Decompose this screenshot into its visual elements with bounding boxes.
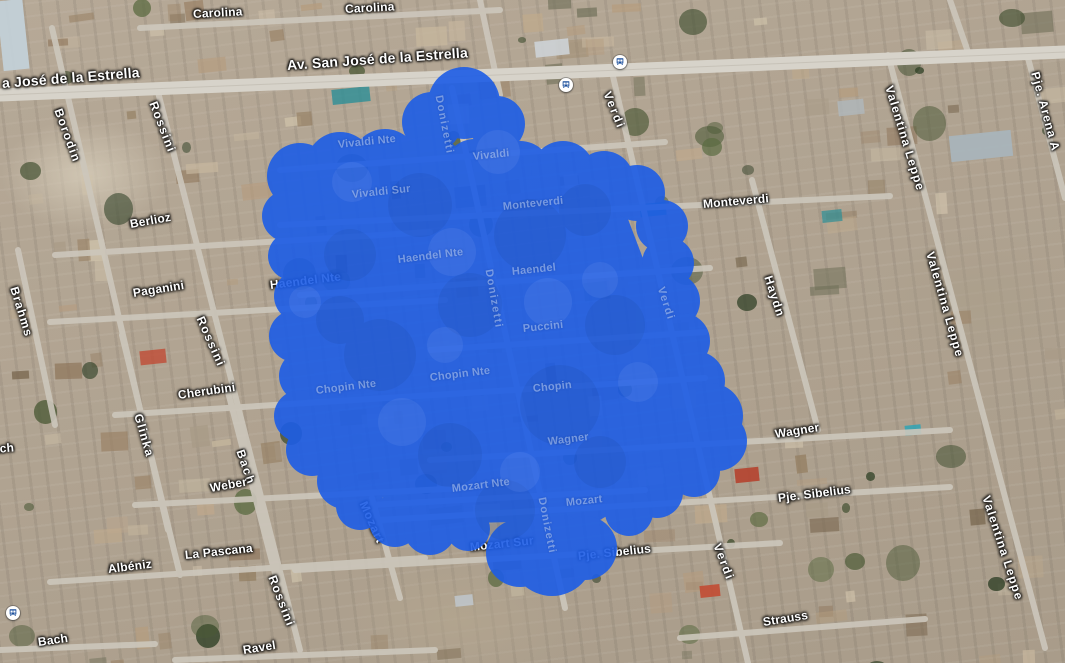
map-texture — [331, 86, 370, 105]
map-texture — [107, 516, 129, 533]
map-texture — [90, 352, 103, 367]
transit-stop-icon[interactable] — [6, 606, 20, 620]
map-texture — [473, 503, 501, 515]
map-texture — [591, 379, 624, 402]
street-label-monteverdi: Monteverdi — [702, 192, 769, 210]
map-texture — [589, 180, 609, 199]
map-texture — [414, 264, 425, 278]
map-texture — [682, 650, 692, 659]
faint-street-label-mozart: Mozart — [565, 494, 603, 509]
map-texture — [430, 505, 465, 525]
map-texture-tree — [702, 138, 721, 156]
map-texture — [825, 210, 856, 220]
transit-vehicle-glyph — [561, 80, 571, 90]
map-texture — [795, 455, 808, 474]
map-texture — [184, 0, 206, 21]
street-label-mozart-sur: Mozart Sur — [469, 534, 534, 553]
map-texture — [77, 239, 91, 262]
map-texture — [284, 368, 315, 378]
map-texture — [301, 3, 322, 12]
map-texture — [379, 166, 392, 187]
map-texture — [861, 130, 881, 143]
faint-street-label-donizetti: Donizetti — [483, 269, 504, 330]
map-texture — [785, 440, 804, 448]
map-texture-tree — [34, 400, 57, 423]
map-texture-tree — [323, 269, 351, 293]
faint-street-label-vivaldi: Vivaldi — [472, 148, 510, 163]
map-texture — [362, 413, 389, 428]
map-texture — [352, 433, 363, 444]
map-texture-tree — [82, 362, 98, 379]
map-texture — [45, 433, 62, 445]
map-texture — [719, 443, 731, 463]
map-texture — [211, 438, 231, 447]
map-texture — [1020, 11, 1053, 35]
map-texture — [1037, 86, 1065, 104]
map-texture — [670, 322, 690, 333]
map-texture — [905, 424, 922, 436]
map-texture — [258, 9, 276, 25]
map-texture — [229, 548, 260, 560]
map-texture-tree — [191, 615, 219, 638]
street-label-strauss: Strauss — [762, 609, 809, 628]
map-texture — [821, 209, 842, 223]
map-texture — [805, 98, 830, 116]
street-label-pje-sibelius: Pje. Sibelius — [577, 542, 651, 562]
map-texture-tree — [58, 71, 74, 84]
street-label-ravel: Ravel — [242, 639, 277, 656]
map-texture — [686, 581, 703, 590]
street-label-pje-sibelius: Pje. Sibelius — [777, 483, 851, 504]
map-texture — [139, 349, 166, 366]
street-label-berlioz: Berlioz — [129, 211, 172, 230]
map-texture — [683, 570, 705, 592]
map-texture — [68, 13, 94, 23]
map-texture-tree — [446, 131, 461, 148]
map-texture-tree — [518, 37, 526, 43]
map-texture — [382, 394, 414, 406]
map-texture-tree — [707, 122, 723, 134]
map-texture — [947, 105, 958, 114]
map-texture — [998, 582, 1021, 595]
map-texture — [290, 564, 302, 583]
map-texture-tree — [563, 450, 577, 465]
map-texture — [548, 0, 572, 9]
map-texture — [176, 169, 200, 184]
street-label-cherubini: Cherubini — [177, 381, 236, 401]
faint-street-label-puccini: Puccini — [522, 320, 563, 335]
map-texture-tree — [842, 503, 850, 512]
map-texture — [487, 343, 502, 353]
street-label-haydn: Haydn — [762, 274, 787, 318]
map-texture — [754, 17, 768, 25]
map-texture — [468, 148, 499, 160]
faint-street-label-verdi: Verdi — [655, 286, 676, 322]
street-label-paganini: Paganini — [132, 279, 185, 299]
map-texture — [585, 38, 604, 55]
map-texture — [582, 36, 614, 47]
map-texture — [48, 39, 68, 47]
street-label-rossini: Rossini — [195, 315, 228, 369]
map-texture — [423, 340, 450, 358]
map-texture-tree — [133, 0, 151, 17]
blue-scribble-overlay — [0, 0, 1065, 663]
map-texture — [567, 25, 586, 36]
street-label-verdi: Verdi — [711, 542, 736, 582]
map-texture-tree — [182, 142, 191, 153]
map-texture-tree — [695, 126, 724, 147]
map-texture — [637, 467, 665, 486]
map-texture-tree — [845, 553, 865, 570]
map-texture — [12, 371, 29, 380]
street-label-carolina: Carolina — [193, 5, 243, 20]
map-texture — [606, 279, 628, 290]
map-texture — [415, 26, 447, 46]
map-texture — [579, 429, 602, 450]
map-texture — [555, 39, 589, 60]
blob-light-texture — [289, 130, 658, 492]
map-texture — [197, 56, 226, 72]
map-texture — [390, 180, 402, 199]
map-texture-tree — [655, 196, 669, 211]
map-texture — [94, 259, 109, 280]
map-texture — [94, 528, 123, 544]
map-texture — [234, 132, 260, 142]
street-label-valentina-leppe: Valentina Leppe — [883, 84, 926, 192]
map-texture — [478, 77, 511, 99]
street-label-glinka: Glinka — [132, 412, 156, 458]
faint-street-label-mozart-nte: Mozart Nte — [451, 477, 510, 495]
street-label-wagner: Wagner — [774, 421, 820, 440]
map-texture — [58, 36, 81, 48]
map-texture — [619, 393, 633, 401]
map-texture-tree — [24, 503, 34, 511]
map-texture — [937, 40, 964, 52]
street-label-rossini: Rossini — [266, 574, 296, 629]
map-texture — [296, 111, 312, 127]
street-label-mozart: Mozart — [358, 500, 387, 546]
map-texture — [845, 591, 856, 603]
map-texture-tree — [737, 294, 758, 312]
map-texture — [815, 609, 847, 624]
map-texture — [448, 104, 470, 125]
map-texture — [239, 565, 257, 580]
map-texture — [394, 411, 404, 425]
map-texture-tree — [866, 472, 876, 481]
map-texture — [644, 530, 675, 544]
street-label-carolina: Carolina — [345, 0, 395, 15]
map-texture-tree — [196, 624, 220, 648]
map-texture — [9, 307, 34, 319]
map-texture — [513, 415, 538, 423]
street-label-bach: Bach — [0, 441, 15, 456]
map-texture — [556, 569, 574, 580]
map-texture — [926, 30, 953, 50]
map-texture-tree — [671, 257, 703, 285]
street-labels-layer: CarolinaCarolinaa José de la EstrellaVer… — [0, 0, 1065, 663]
map-texture — [472, 395, 489, 412]
faint-street-label-vivaldi-sur: Vivaldi Sur — [351, 184, 411, 201]
map-texture — [386, 81, 397, 91]
map-texture — [196, 498, 214, 515]
street-label-valentina-leppe: Valentina Leppe — [980, 494, 1025, 602]
transit-vehicle-glyph — [615, 57, 625, 67]
faint-street-label-chopin-nte: Chopin Nte — [429, 366, 491, 384]
map-texture — [134, 476, 151, 490]
map-texture — [633, 76, 645, 96]
overlay-labels-layer: Av. San José de la EstrellaDonizettiViva… — [0, 0, 1065, 663]
map-texture-tree — [104, 193, 133, 225]
faint-street-label-chopin-nte: Chopin Nte — [315, 379, 377, 397]
faint-street-label-monteverdi: Monteverdi — [502, 196, 564, 213]
map-texture — [273, 343, 283, 360]
map-texture — [735, 256, 747, 268]
map-texture — [1045, 347, 1065, 359]
map-texture-tree — [469, 212, 493, 237]
map-texture-tree — [415, 474, 437, 494]
map-texture-tree — [886, 545, 920, 582]
map-texture — [619, 344, 651, 364]
map-texture — [315, 215, 327, 233]
transit-stop-icon[interactable] — [613, 55, 627, 69]
street-label-rossini: Rossini — [147, 100, 177, 155]
faint-street-label-donizetti: Donizetti — [433, 94, 455, 155]
map-texture — [792, 57, 810, 79]
map-texture — [399, 458, 419, 476]
street-label-alb-niz: Albéniz — [107, 558, 152, 575]
map-texture — [699, 584, 720, 598]
map-texture — [128, 524, 149, 535]
map-texture — [560, 175, 580, 186]
map-texture — [89, 657, 108, 663]
map-texture-tree — [305, 296, 317, 310]
map-texture-tree — [336, 154, 368, 182]
map-texture — [81, 175, 93, 196]
map-texture — [510, 585, 524, 598]
map-texture — [190, 425, 210, 449]
map-texture — [979, 654, 1002, 663]
map-texture — [819, 606, 833, 617]
map-texture — [260, 440, 282, 463]
map-texture — [506, 179, 522, 194]
map-texture — [437, 648, 462, 660]
faint-street-label-wagner: Wagner — [547, 432, 589, 448]
map-texture-tree — [280, 422, 302, 445]
map-texture — [53, 241, 66, 257]
map-texture-tree — [913, 106, 946, 141]
map-texture — [323, 273, 340, 281]
map-texture — [838, 87, 858, 98]
street-label-haendel-nte: Haendel Nte — [269, 270, 341, 291]
map-texture-tree — [441, 442, 452, 452]
street-label-av-san-jos-de-la-estrella: Av. San José de la Estrella — [287, 45, 469, 72]
map-texture — [226, 279, 237, 286]
faint-street-label-haendel-nte: Haendel Nte — [397, 247, 464, 266]
map-texture — [351, 159, 368, 167]
blob-shape — [262, 67, 747, 596]
map-texture — [810, 517, 840, 533]
map-texture-tree — [1042, 126, 1051, 135]
map-texture — [285, 116, 301, 126]
map-texture — [28, 193, 44, 205]
transit-vehicle-glyph — [8, 608, 18, 618]
map-texture — [358, 473, 380, 482]
street-label-valentina-leppe: Valentina Leppe — [924, 250, 966, 358]
map-texture — [339, 409, 367, 426]
satellite-map-canvas[interactable]: CarolinaCarolinaa José de la EstrellaVer… — [0, 0, 1065, 663]
map-texture — [1017, 555, 1043, 578]
map-texture — [826, 216, 857, 234]
street-label-bach: Bach — [234, 448, 257, 486]
map-texture — [948, 371, 962, 385]
map-texture — [949, 130, 1013, 162]
map-texture — [672, 389, 697, 408]
map-texture — [274, 441, 298, 460]
map-texture — [87, 240, 105, 262]
street-label-la-pascana: La Pascana — [184, 542, 253, 561]
map-texture-tree — [618, 382, 631, 397]
map-texture — [493, 554, 522, 570]
map-texture-tree — [9, 625, 35, 647]
map-texture — [336, 255, 348, 274]
map-texture — [127, 110, 137, 119]
map-texture-tree — [999, 9, 1025, 27]
map-texture-tree — [20, 162, 41, 181]
street-label-pje-arena-a: Pje. Arena A — [1029, 70, 1062, 152]
map-texture — [936, 193, 948, 214]
map-texture — [639, 202, 666, 218]
map-texture — [179, 478, 210, 493]
map-texture — [813, 267, 847, 290]
map-texture — [58, 304, 77, 312]
map-texture — [563, 173, 579, 188]
street-label-verdi: Verdi — [601, 90, 627, 131]
street-label-brahms: Brahms — [8, 285, 35, 338]
map-texture — [612, 3, 641, 12]
map-texture — [423, 430, 447, 450]
map-texture — [577, 8, 598, 18]
transit-stops-layer — [0, 0, 1065, 663]
map-texture — [101, 431, 128, 451]
street-label-weber: Weber — [209, 476, 248, 494]
map-texture-tree — [592, 574, 601, 583]
map-texture — [588, 395, 603, 416]
map-texture — [193, 565, 203, 575]
map-texture — [135, 626, 150, 649]
map-texture-tree — [679, 625, 700, 645]
map-texture — [545, 63, 564, 85]
map-texture — [523, 14, 545, 34]
map-texture — [734, 467, 759, 483]
map-texture — [837, 99, 864, 117]
map-texture — [695, 504, 728, 524]
map-texture-tree — [727, 539, 735, 548]
faint-street-label-vivaldi-nte: Vivaldi Nte — [337, 134, 396, 151]
map-texture-tree — [488, 569, 504, 587]
faint-street-label-haendel: Haendel — [511, 262, 556, 278]
map-texture — [969, 508, 986, 525]
map-texture — [371, 635, 389, 652]
map-texture-tree — [621, 108, 649, 135]
map-texture — [455, 277, 479, 297]
street-label-a-jos-de-la-estrella: a José de la Estrella — [1, 65, 140, 90]
map-texture — [0, 0, 30, 71]
map-texture — [905, 613, 927, 636]
street-label-bach: Bach — [37, 632, 69, 648]
map-texture-tree — [750, 512, 767, 527]
street-grid — [0, 0, 1065, 663]
map-texture — [545, 363, 557, 384]
map-texture — [1054, 406, 1065, 419]
map-texture — [583, 281, 610, 301]
map-texture-tree — [808, 557, 833, 582]
map-texture — [871, 148, 901, 162]
map-texture — [150, 25, 165, 37]
map-texture — [458, 93, 473, 106]
map-texture — [449, 21, 466, 42]
blob-dark-texture — [316, 173, 645, 540]
map-texture — [270, 29, 285, 42]
map-texture — [868, 180, 885, 195]
map-texture — [185, 162, 218, 174]
map-texture-tree — [988, 577, 1004, 591]
map-texture-tree — [234, 489, 257, 514]
map-texture — [534, 38, 569, 57]
map-texture-tree — [915, 67, 925, 74]
map-texture — [1022, 650, 1034, 663]
map-texture — [797, 478, 827, 486]
map-texture — [455, 185, 488, 209]
faint-street-label-donizetti: Donizetti — [536, 496, 558, 554]
map-texture — [886, 126, 917, 146]
map-texture-tree — [349, 65, 365, 77]
map-texture — [419, 453, 448, 475]
map-texture — [676, 148, 703, 161]
map-texture-tree — [283, 258, 316, 290]
faint-street-label-chopin: Chopin — [532, 380, 572, 395]
map-texture — [111, 659, 125, 663]
map-imagery-texture — [0, 0, 1065, 663]
transit-stop-icon[interactable] — [559, 78, 573, 92]
map-texture — [454, 594, 473, 607]
map-texture-tree — [936, 445, 965, 467]
street-label-borodin: Borodin — [52, 107, 83, 164]
map-texture — [950, 310, 971, 324]
map-texture — [158, 632, 171, 649]
map-texture-tree — [679, 9, 707, 35]
map-texture — [810, 285, 839, 295]
map-texture — [55, 363, 83, 380]
map-texture — [649, 592, 672, 614]
map-texture — [167, 4, 182, 22]
map-texture — [170, 13, 185, 23]
map-texture-tree — [742, 165, 754, 175]
map-texture — [805, 502, 828, 517]
map-texture — [417, 461, 447, 473]
map-texture — [0, 22, 1, 34]
map-texture — [242, 181, 275, 201]
map-texture-tree — [897, 49, 922, 76]
